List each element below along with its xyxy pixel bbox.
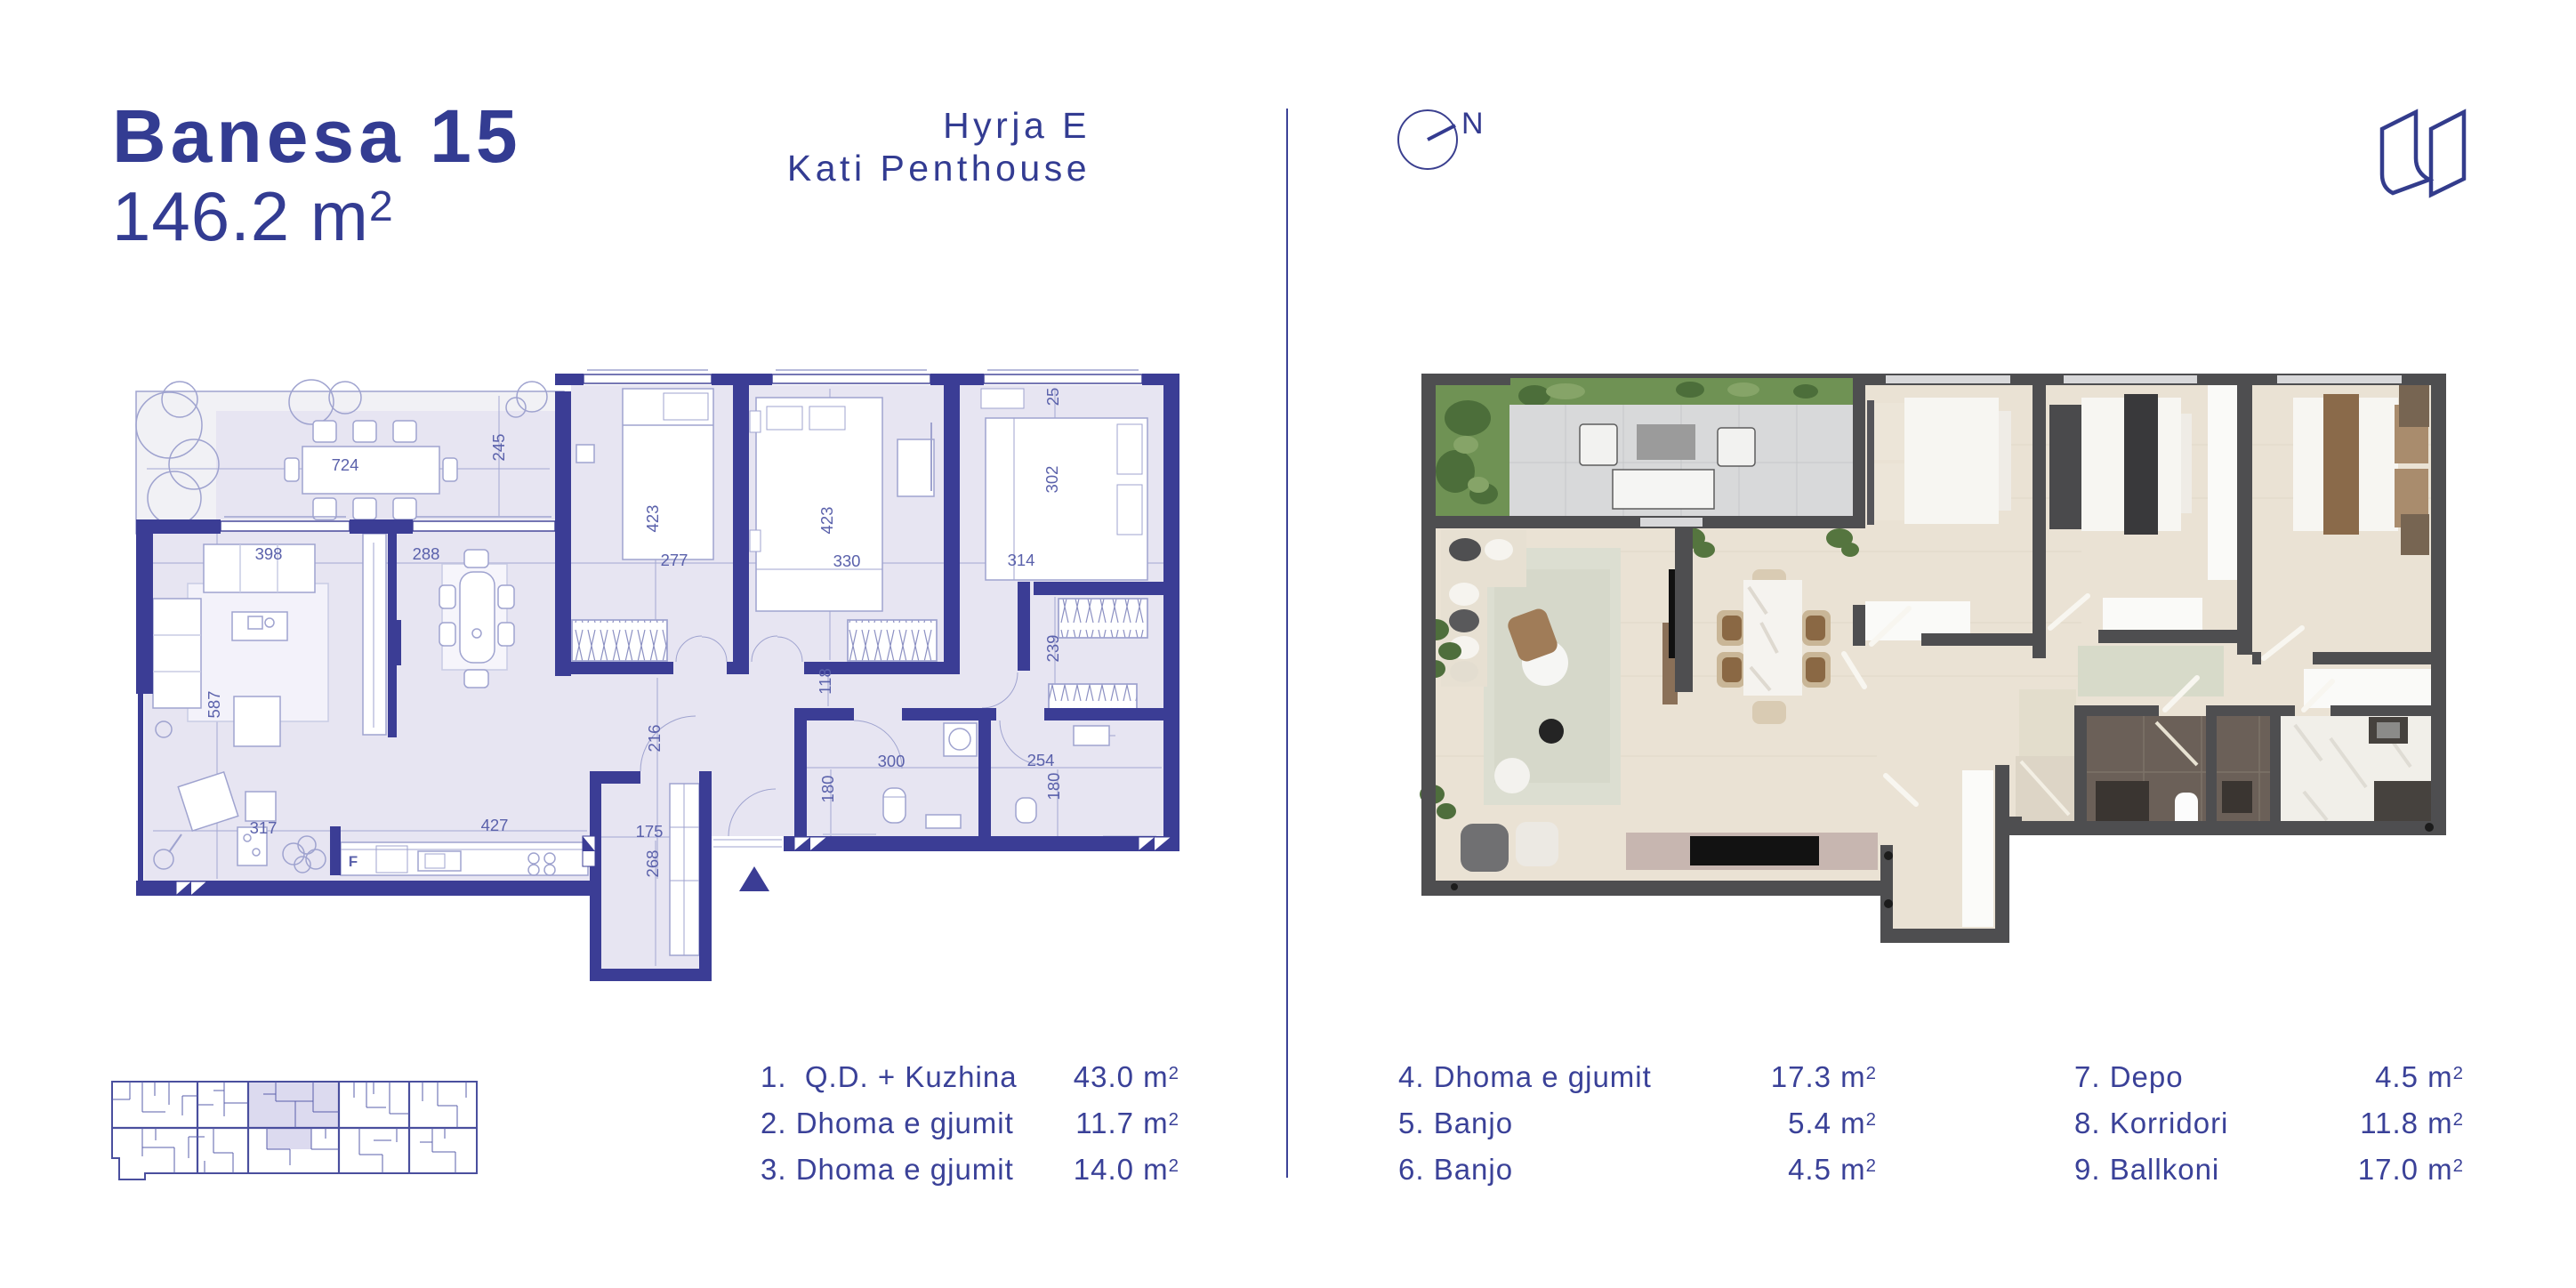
svg-text:423: 423: [643, 505, 662, 533]
svg-text:F: F: [349, 853, 358, 870]
svg-text:302: 302: [1042, 466, 1061, 494]
svg-text:118: 118: [816, 668, 834, 695]
svg-text:423: 423: [817, 507, 836, 535]
svg-text:268: 268: [643, 850, 662, 878]
svg-text:587: 587: [205, 691, 223, 719]
svg-text:288: 288: [413, 544, 440, 563]
svg-text:724: 724: [332, 455, 359, 474]
svg-text:427: 427: [481, 816, 509, 834]
svg-text:245: 245: [489, 434, 508, 462]
svg-text:180: 180: [818, 776, 837, 803]
svg-text:314: 314: [1008, 551, 1035, 569]
svg-text:330: 330: [833, 551, 861, 570]
svg-text:300: 300: [878, 752, 906, 770]
svg-text:25: 25: [1043, 388, 1062, 407]
svg-text:175: 175: [636, 822, 664, 841]
svg-text:398: 398: [255, 544, 283, 563]
svg-text:277: 277: [661, 551, 688, 569]
svg-text:180: 180: [1044, 773, 1063, 801]
svg-text:216: 216: [645, 725, 664, 753]
svg-text:317: 317: [250, 818, 278, 837]
svg-text:239: 239: [1043, 635, 1062, 663]
svg-text:254: 254: [1027, 751, 1055, 769]
